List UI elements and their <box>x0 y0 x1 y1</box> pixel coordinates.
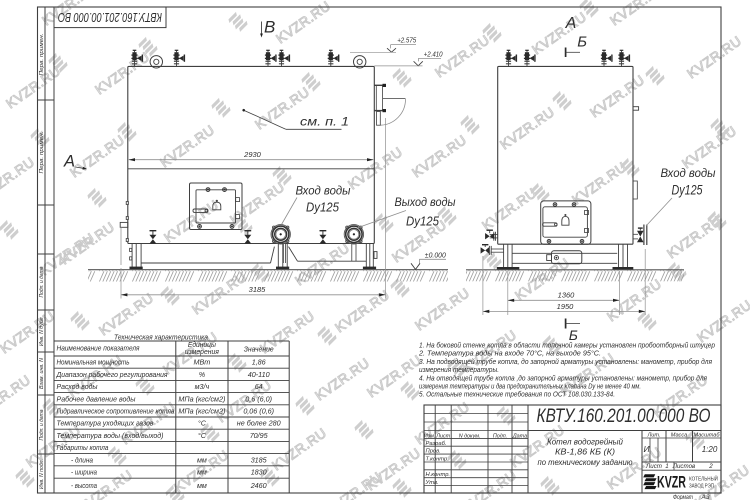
svg-text:Лист: Лист <box>435 433 450 439</box>
svg-text:Температура уходящих газов: Температура уходящих газов <box>57 419 154 428</box>
svg-text:Формат: Формат <box>673 494 693 500</box>
svg-text:Вход воды: Вход воды <box>661 168 717 180</box>
svg-text:МПа (кгс/см2): МПа (кгс/см2) <box>178 394 225 403</box>
svg-text:0,6 (6,0): 0,6 (6,0) <box>245 394 272 403</box>
svg-text:1830: 1830 <box>251 468 267 477</box>
svg-text:Пров.: Пров. <box>426 449 441 455</box>
svg-text:В: В <box>264 18 275 37</box>
svg-text:2. Температура воды на входе: 2. Температура воды на входе 70°С, на вы… <box>418 350 601 358</box>
svg-text:м3/ч: м3/ч <box>195 382 210 391</box>
svg-text:Dy125: Dy125 <box>306 200 340 215</box>
svg-text:Перв. примен.: Перв. примен. <box>39 132 45 174</box>
svg-text:1:20: 1:20 <box>702 445 718 454</box>
svg-text:А3: А3 <box>701 494 710 500</box>
svg-text:И: И <box>643 444 650 454</box>
svg-text:+2.575: +2.575 <box>397 38 416 45</box>
svg-text:Температура воды (вход/выход): Температура воды (вход/выход) <box>57 431 164 440</box>
svg-text:%: % <box>199 370 206 379</box>
svg-text:Габариты котла: Габариты котла <box>57 443 109 452</box>
svg-text:1360: 1360 <box>558 291 576 300</box>
svg-text:3. На подводящей трубе котла,: 3. На подводящей трубе котла, до запорно… <box>419 358 712 366</box>
svg-text:Лист: Лист <box>645 463 662 470</box>
svg-text:Вход воды: Вход воды <box>296 186 352 198</box>
svg-text:Листов: Листов <box>672 463 696 470</box>
svg-text:Котел водогрейный: Котел водогрейный <box>547 437 623 447</box>
svg-text:измерения температуры.: измерения температуры. <box>419 367 499 374</box>
svg-text:Изм.: Изм. <box>424 433 436 439</box>
svg-text:±0.000: ±0.000 <box>425 252 446 259</box>
svg-text:КВТУ.160.201.00.000 ВО: КВТУ.160.201.00.000 ВО <box>537 406 711 427</box>
svg-text:А: А <box>63 153 75 171</box>
svg-text:1950: 1950 <box>557 302 575 311</box>
svg-text:- длина: - длина <box>71 455 93 464</box>
svg-text:Выход воды: Выход воды <box>395 197 457 209</box>
svg-text:KVZR: KVZR <box>657 473 686 492</box>
svg-text:мм: мм <box>197 468 207 477</box>
svg-text:КОТЕЛЬНЫЙ: КОТЕЛЬНЫЙ <box>689 475 718 483</box>
svg-text:мм: мм <box>197 455 207 464</box>
svg-text:не более 280: не более 280 <box>237 419 281 428</box>
svg-text:Утв.: Утв. <box>425 480 439 486</box>
svg-text:Диапазон рабочего регулировани: Диапазон рабочего регулирования <box>56 370 168 379</box>
svg-text:4. На отводящей трубе котла ,: 4. На отводящей трубе котла ,до запорной… <box>419 374 707 382</box>
svg-text:70/95: 70/95 <box>250 431 269 440</box>
svg-text:2930: 2930 <box>243 150 262 159</box>
svg-text:N докум.: N докум. <box>459 433 481 439</box>
svg-text:64: 64 <box>255 382 263 391</box>
svg-text:МПа (кгс/см2): МПа (кгс/см2) <box>178 407 225 416</box>
svg-text:Номинальная мощность: Номинальная мощность <box>57 358 130 367</box>
svg-text:Б: Б <box>569 327 578 343</box>
svg-text:Взам. инв. N: Взам. инв. N <box>39 357 45 389</box>
svg-text:0,06 (0,6): 0,06 (0,6) <box>243 407 274 416</box>
svg-text:°С: °С <box>198 419 207 428</box>
svg-text:3185: 3185 <box>249 285 267 294</box>
svg-text:- высота: - высота <box>71 481 97 490</box>
svg-text:+2.410: +2.410 <box>424 51 443 58</box>
svg-text:Гидравлическое сопротивление к: Гидравлическое сопротивление котла <box>57 407 175 416</box>
svg-text:3185: 3185 <box>251 455 268 464</box>
svg-text:Дата: Дата <box>512 433 527 439</box>
svg-text:ЗАВОД РЭП: ЗАВОД РЭП <box>689 484 714 490</box>
svg-text:Dy125: Dy125 <box>406 214 440 229</box>
svg-text:МВт: МВт <box>194 358 211 367</box>
svg-text:Значение: Значение <box>244 345 274 354</box>
svg-text:Инв. N подл.: Инв. N подл. <box>39 459 45 489</box>
svg-text:КВТУ.160.201.00.000 ВО: КВТУ.160.201.00.000 ВО <box>58 10 162 24</box>
svg-text:1: 1 <box>665 463 668 470</box>
svg-text:- ширина: - ширина <box>71 468 97 477</box>
svg-text:Наименование показателя: Наименование показателя <box>57 344 140 353</box>
svg-text:Подп. и дата: Подп. и дата <box>39 409 45 441</box>
svg-text:Рабочее давление воды: Рабочее давление воды <box>57 394 137 403</box>
svg-text:2: 2 <box>708 463 713 470</box>
svg-text:Dy125: Dy125 <box>672 182 703 197</box>
svg-text:1,86: 1,86 <box>252 358 266 367</box>
svg-text:Подп.: Подп. <box>493 433 507 439</box>
svg-text:А: А <box>565 15 577 32</box>
svg-text:Лит.: Лит. <box>646 433 660 439</box>
svg-text:по техническому заданию: по техническому заданию <box>538 457 633 467</box>
svg-text:Инв. N дубл.: Инв. N дубл. <box>39 316 45 346</box>
svg-text:1. На боковой стенке котла в: 1. На боковой стенке котла в области топ… <box>419 342 715 350</box>
svg-text:Б: Б <box>577 34 587 51</box>
svg-text:5. Остальные технические треб: 5. Остальные технические требования по О… <box>419 391 615 399</box>
svg-text:измерения: измерения <box>185 347 219 356</box>
svg-text:Разраб.: Разраб. <box>426 441 447 447</box>
svg-text:°С: °С <box>198 431 207 440</box>
svg-text:КВ-1,86 КБ (К): КВ-1,86 КБ (К) <box>555 447 615 457</box>
svg-text:2460: 2460 <box>250 481 267 490</box>
svg-text:мм: мм <box>197 481 207 490</box>
svg-text:Подп. и дата: Подп. и дата <box>39 266 45 298</box>
svg-text:Масса: Масса <box>671 433 688 439</box>
svg-text:40-110: 40-110 <box>248 370 270 379</box>
svg-text:Перв. примен.: Перв. примен. <box>39 33 45 75</box>
svg-text:Н.контр.: Н.контр. <box>426 472 451 478</box>
svg-text:Расход воды: Расход воды <box>57 382 99 391</box>
svg-text:см. п. 1: см. п. 1 <box>300 114 349 128</box>
svg-text:измерения температуры и два пр: измерения температуры и два предохраните… <box>419 383 641 391</box>
svg-text:Масштаб: Масштаб <box>694 433 721 439</box>
svg-text:Т.контр.: Т.контр. <box>426 457 449 463</box>
